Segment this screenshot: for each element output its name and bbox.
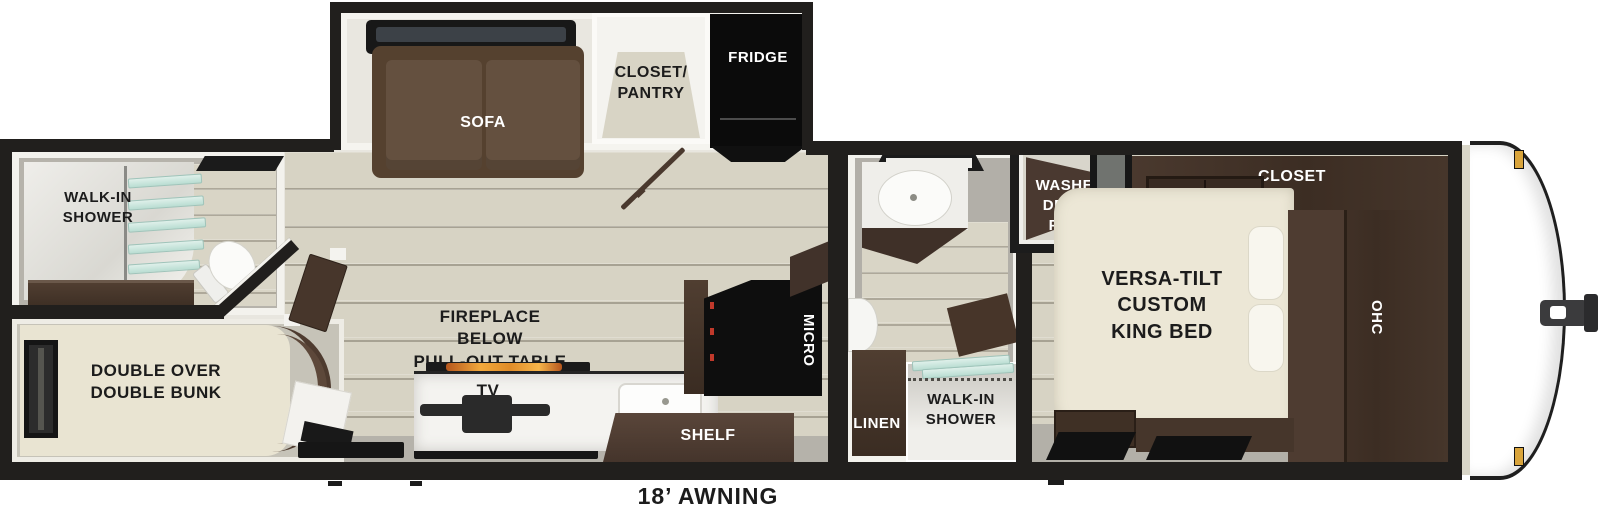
range-burner-light xyxy=(710,328,714,335)
rear-bath-shower-label: WALK-IN SHOWER xyxy=(30,188,166,228)
sofa-label: SOFA xyxy=(438,112,528,133)
shelf-label: SHELF xyxy=(648,425,768,446)
slideout-wall-right xyxy=(802,2,813,150)
awning-mark xyxy=(1048,480,1064,485)
hull-wall-top-left xyxy=(0,139,334,152)
hitch-coupler-hole xyxy=(1550,306,1566,319)
bunk-door-jamb xyxy=(330,248,346,260)
fridge-label: FRIDGE xyxy=(718,48,798,68)
range-burner-light xyxy=(710,354,714,361)
hull-wall-left xyxy=(0,139,12,480)
hull-wall-right xyxy=(1448,141,1462,480)
fridge xyxy=(710,14,806,148)
tv-screen-center xyxy=(462,395,512,433)
mid-bath-sink-drain xyxy=(910,194,917,201)
slideout-wall-left xyxy=(330,2,341,150)
bunk-window-slat xyxy=(38,348,44,430)
bunk-label: DOUBLE OVER DOUBLE BUNK xyxy=(58,360,254,405)
range-burner-light xyxy=(710,302,714,309)
hitch-plate xyxy=(1584,294,1598,332)
closet-pantry-label: CLOSET/ PANTRY xyxy=(596,62,706,104)
bunk-top-wall xyxy=(12,305,224,319)
mid-bath-shower-label: WALK-IN SHOWER xyxy=(910,390,1012,430)
linen-label: LINEN xyxy=(844,414,910,434)
fireplace-flames xyxy=(446,363,562,371)
living-window xyxy=(298,442,404,458)
ohc-label: OHC xyxy=(1360,282,1384,352)
micro-label: MICRO xyxy=(794,298,816,382)
floorplan: CLOSET/ PANTRY FRIDGE SOFA WALK-IN SHOWE… xyxy=(0,0,1600,508)
slideout-window-glass xyxy=(376,27,566,42)
hull-wall-top-right xyxy=(806,141,1462,155)
bedroom-window xyxy=(1146,436,1252,460)
king-bed-label: VERSA-TILT CUSTOM KING BED xyxy=(1064,266,1260,345)
rear-bath-skylight xyxy=(196,156,284,171)
awning-mark xyxy=(410,481,422,486)
awning-label: 18’ AWNING xyxy=(558,481,858,508)
awning-mark xyxy=(328,481,342,486)
marker-light xyxy=(1514,447,1524,466)
hull-wall-bottom xyxy=(0,462,1462,480)
bedroom-window xyxy=(1046,432,1136,460)
kitchen-faucet xyxy=(662,398,669,405)
slideout-wall-top xyxy=(330,2,813,13)
linen-cabinet xyxy=(852,350,906,456)
mid-shower-rod xyxy=(908,378,1012,381)
ohc-wardrobe-front xyxy=(1288,210,1347,462)
fridge-handle xyxy=(720,118,796,120)
marker-light xyxy=(1514,150,1524,169)
